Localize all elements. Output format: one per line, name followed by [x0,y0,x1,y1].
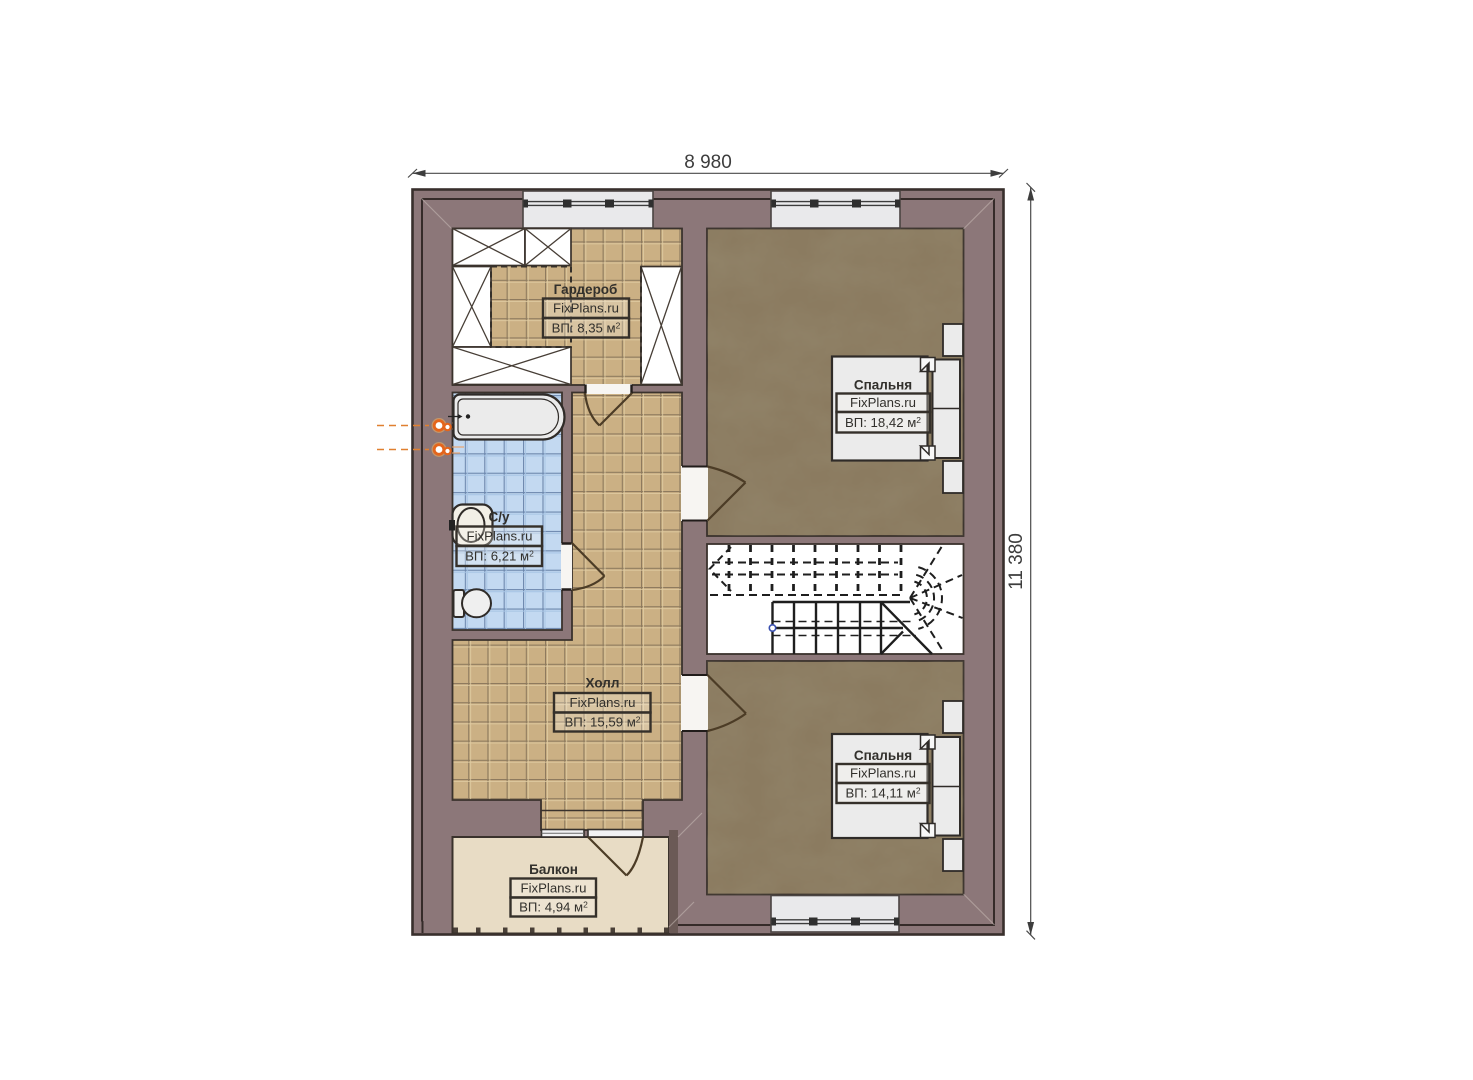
svg-text:8 980: 8 980 [684,152,732,173]
svg-text:FixPlans.ru: FixPlans.ru [850,766,916,781]
svg-text:ВП: 15,59 м2: ВП: 15,59 м2 [564,715,640,730]
svg-text:ВП: 6,21 м2: ВП: 6,21 м2 [465,549,534,564]
svg-text:Балкон: Балкон [529,862,578,877]
svg-text:Спальня: Спальня [854,378,912,393]
svg-text:Холл: Холл [586,676,620,691]
svg-text:FixPlans.ru: FixPlans.ru [521,881,587,896]
svg-text:Гардероб: Гардероб [554,282,618,297]
svg-text:ВП: 4,94 м2: ВП: 4,94 м2 [519,900,588,915]
svg-text:11 380: 11 380 [1006,533,1027,590]
svg-text:ВП: 14,11 м2: ВП: 14,11 м2 [845,786,920,801]
svg-text:ВП: 18,42 м2: ВП: 18,42 м2 [845,415,921,430]
svg-text:ВП: 8,35 м2: ВП: 8,35 м2 [552,321,621,336]
svg-text:FixPlans.ru: FixPlans.ru [467,529,533,544]
svg-text:С/у: С/у [488,510,510,525]
svg-text:FixPlans.ru: FixPlans.ru [553,301,619,316]
svg-text:Спальня: Спальня [854,748,912,763]
svg-text:FixPlans.ru: FixPlans.ru [570,695,636,710]
svg-text:FixPlans.ru: FixPlans.ru [850,395,916,410]
